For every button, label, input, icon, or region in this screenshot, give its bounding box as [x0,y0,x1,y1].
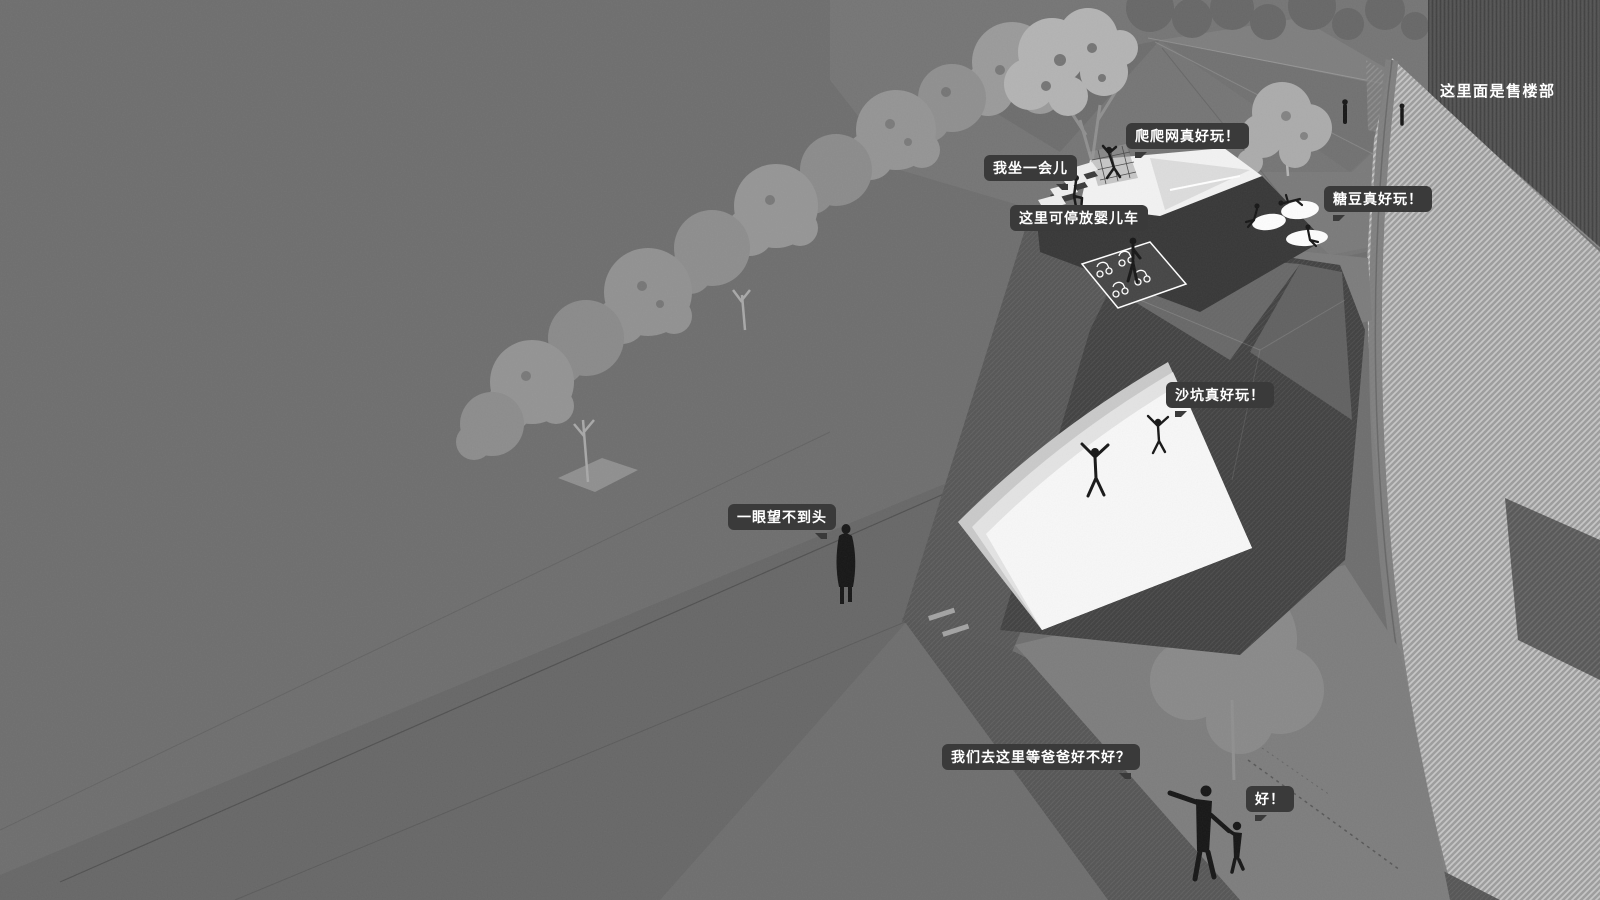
sales-office-label: 这里面是售楼部 [1440,80,1556,101]
speech-bubble-climbing-net: 爬爬网真好玩！ [1126,123,1249,149]
speech-bubble-sand-pit: 沙坑真好玩！ [1166,382,1274,408]
speech-bubble-sit-a-while: 我坐一会儿 [984,155,1077,181]
speech-bubble-stroller-parking: 这里可停放婴儿车 [1010,205,1148,231]
speech-bubble-ok-reply: 好！ [1246,786,1294,812]
scene-illustration [0,0,1600,900]
speech-bubble-candy-beans: 糖豆真好玩！ [1324,186,1432,212]
speech-bubble-wait-for-dad: 我们去这里等爸爸好不好？ [942,744,1140,770]
speech-bubble-endless-view: 一眼望不到头 [728,504,836,530]
site-diagram-canvas: 爬爬网真好玩！ 我坐一会儿 这里可停放婴儿车 糖豆真好玩！ 沙坑真好玩！ 一眼望… [0,0,1600,900]
paper-grain-texture [0,0,1600,900]
